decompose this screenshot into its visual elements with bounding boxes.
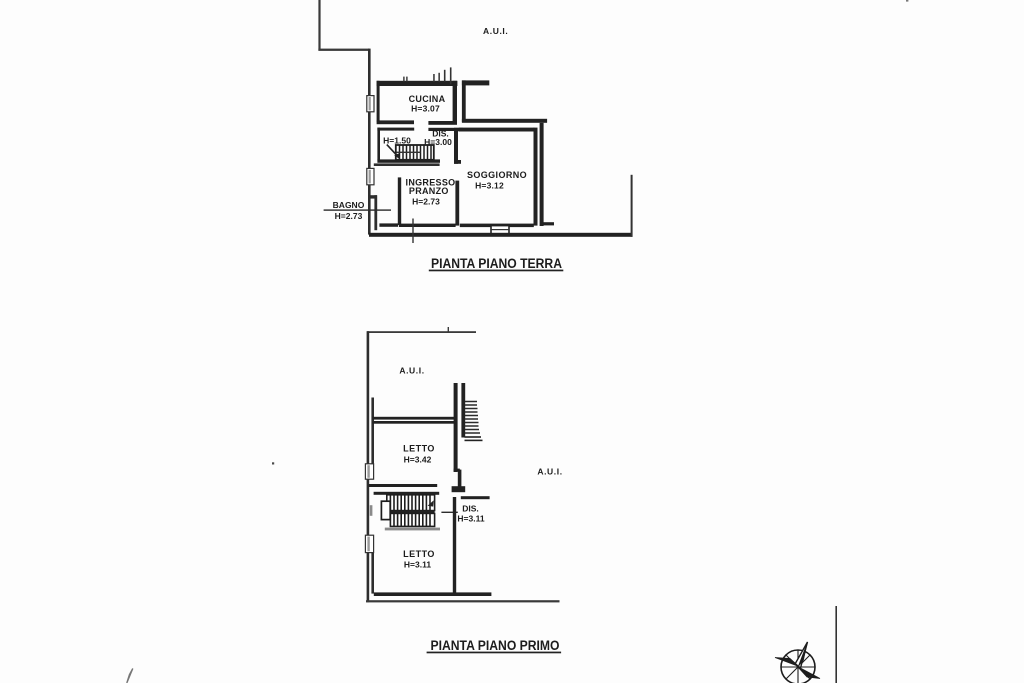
svg-text:A.U.I.: A.U.I. [537, 467, 562, 477]
svg-text:H=3.12: H=3.12 [475, 181, 504, 191]
svg-text:DIS.: DIS. [462, 504, 479, 514]
svg-text:LETTO: LETTO [403, 444, 435, 454]
svg-text:H=2.73: H=2.73 [335, 211, 363, 221]
svg-text:A.U.I.: A.U.I. [483, 26, 508, 36]
svg-text:H=1.50: H=1.50 [383, 136, 411, 146]
svg-text:PRANZO: PRANZO [409, 186, 449, 196]
svg-text:H=3.11: H=3.11 [457, 514, 484, 524]
svg-text:H=3.11: H=3.11 [404, 560, 431, 570]
svg-text:CUCINA: CUCINA [409, 94, 446, 104]
svg-text:H=3.07: H=3.07 [411, 104, 440, 114]
svg-text:LETTO: LETTO [403, 549, 435, 559]
svg-text:H=2.73: H=2.73 [412, 197, 440, 207]
svg-text:H=3.42: H=3.42 [404, 455, 432, 465]
svg-text:A.U.I.: A.U.I. [399, 366, 424, 376]
svg-text:SOGGIORNO: SOGGIORNO [467, 170, 527, 180]
svg-text:BAGNO: BAGNO [333, 200, 365, 210]
